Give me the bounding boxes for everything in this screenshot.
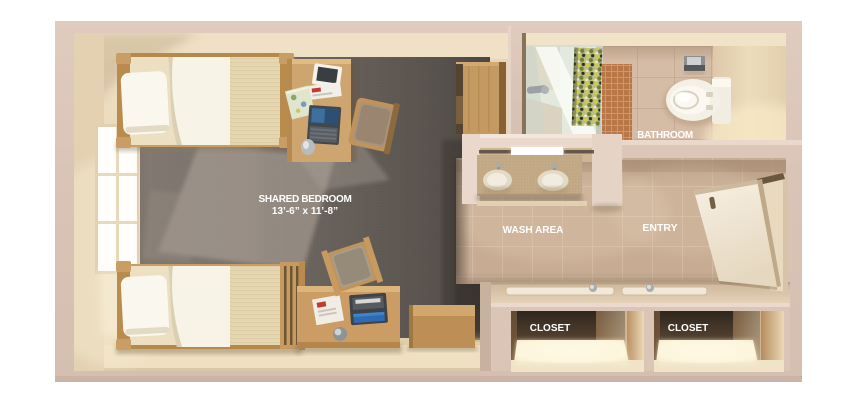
svg-text:CLOSET: CLOSET: [668, 323, 709, 334]
svg-text:CLOSET: CLOSET: [530, 323, 571, 334]
svg-text:13’-6” x 11’-8”: 13’-6” x 11’-8”: [272, 206, 338, 217]
svg-text:WASH AREA: WASH AREA: [503, 225, 564, 236]
svg-text:ENTRY: ENTRY: [642, 222, 677, 234]
svg-text:SHARED BEDROOM: SHARED BEDROOM: [258, 194, 351, 205]
svg-text:BATHROOM: BATHROOM: [637, 130, 693, 141]
